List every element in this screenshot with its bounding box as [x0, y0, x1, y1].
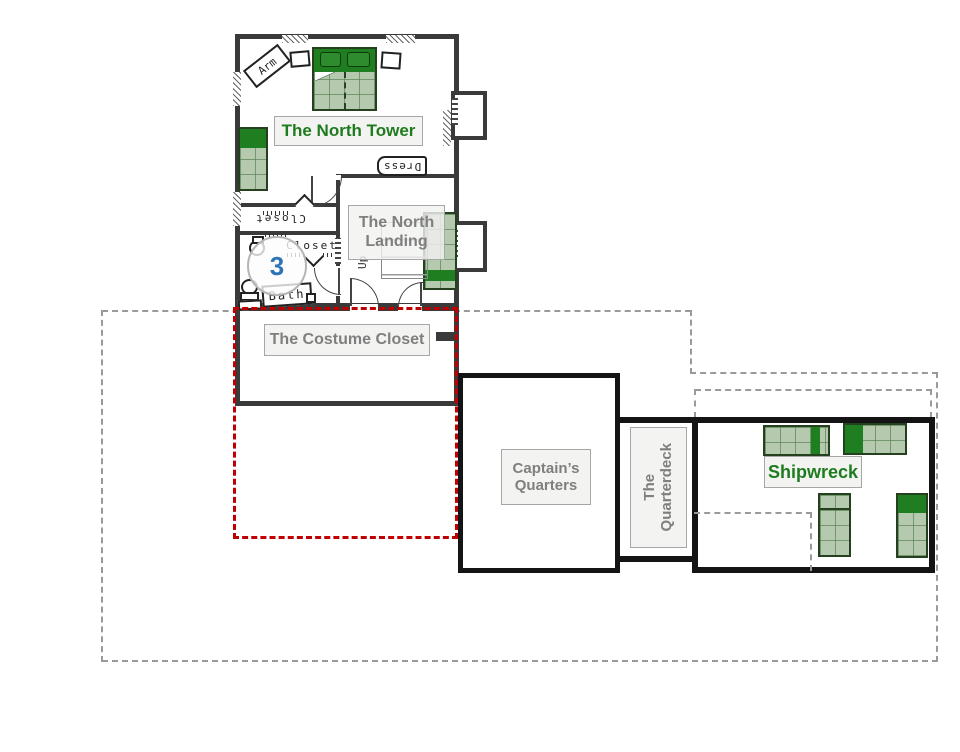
bed-shipwreck-4	[896, 493, 928, 558]
bed-shipwreck-1	[763, 425, 830, 456]
deck-inner-vertical	[810, 512, 812, 571]
door-leaf-landing-right	[420, 282, 422, 306]
deck-outline-right	[930, 389, 932, 418]
bed-master	[312, 47, 377, 111]
costume-closet-room	[235, 306, 459, 406]
bed-twin-left	[238, 127, 268, 191]
quarterdeck-vertical-text: The Quarterdeck	[641, 443, 676, 531]
bed-centerline	[344, 72, 346, 109]
corridor-wall-bottom	[615, 556, 695, 562]
door-leaf-landing-costume	[350, 278, 352, 306]
door-leaf-bath	[338, 268, 340, 294]
boundary-right-edge	[936, 372, 938, 662]
window-top-1	[282, 35, 308, 43]
dresser: Dress	[377, 156, 427, 176]
window-left-2	[233, 192, 241, 226]
deck-inner-horizontal	[694, 512, 812, 514]
corridor-wall-top	[615, 417, 695, 423]
room-label-quarterdeck: The Quarterdeck	[630, 427, 687, 548]
location-marker: 3	[247, 236, 307, 296]
closet-top-label: Closet	[248, 212, 312, 225]
floorplan-canvas: Arm Dress Up Bath Closet Closet The Nort…	[0, 0, 960, 752]
window-right-1	[443, 110, 451, 146]
nightstand-left	[289, 50, 310, 68]
boundary-top-right-segment	[690, 372, 938, 374]
room-label-shipwreck: Shipwreck	[764, 456, 862, 488]
marker-number: 3	[270, 251, 284, 282]
deck-outline-top	[695, 389, 932, 391]
deck-outline-left	[694, 389, 696, 418]
bed-fold	[315, 72, 335, 81]
nightstand-right	[380, 51, 401, 69]
room-label-captains-quarters: Captain’s Quarters	[501, 449, 591, 505]
window-left-1	[233, 72, 241, 106]
room-label-north-tower: The North Tower	[274, 116, 423, 146]
room-label-north-landing: The North Landing	[348, 205, 445, 260]
bed-shipwreck-2	[843, 423, 907, 455]
bath-mat	[238, 299, 262, 310]
bath-door-tab	[306, 293, 316, 303]
boundary-step-vertical	[690, 310, 692, 374]
closet-wall-stub	[436, 332, 456, 341]
bed-shipwreck-3	[818, 493, 851, 557]
bay-window-upper	[452, 98, 458, 125]
dresser-label: Dress	[383, 160, 421, 173]
boundary-bottom-edge	[102, 660, 938, 662]
room-label-costume-closet: The Costume Closet	[264, 324, 430, 356]
boundary-left-edge	[101, 310, 103, 662]
window-top-2	[386, 35, 415, 43]
